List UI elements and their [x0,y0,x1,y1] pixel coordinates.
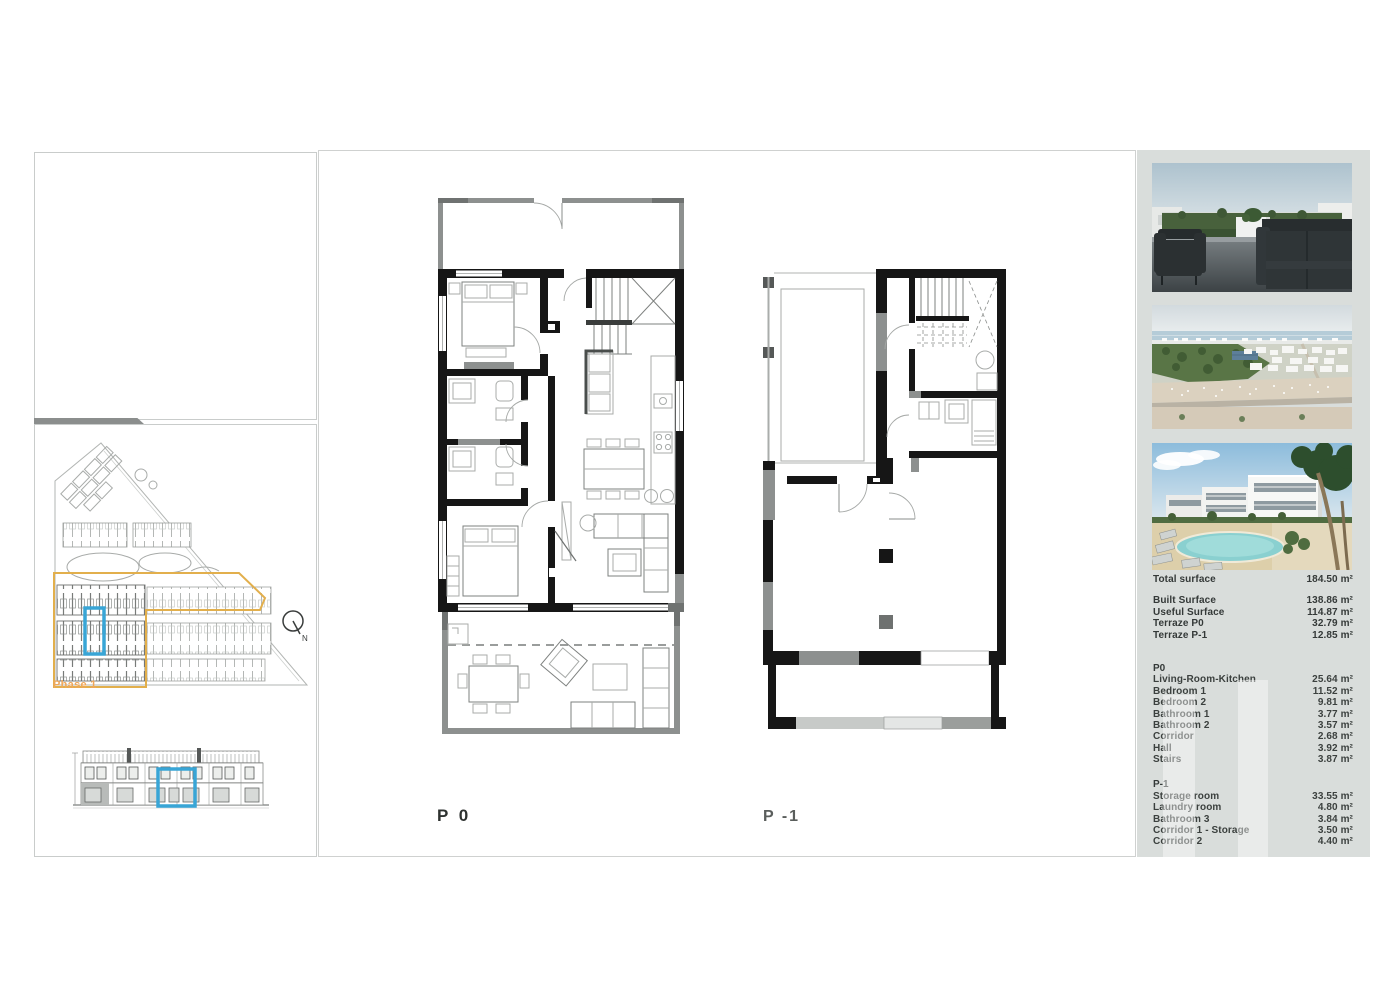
area-label: Terraze P0 [1153,618,1204,629]
sidebar: Total surface 184.50 m² Built Surface138… [1137,150,1370,857]
area-value: 33.55 m² [1312,791,1353,802]
area-value: 138.86 m² [1307,595,1354,606]
p0-label: P 0 [437,806,471,826]
area-row: Corridor 24.40 m² [1153,836,1353,847]
area-label: Bedroom 2 [1153,697,1206,708]
area-label: Laundry room [1153,802,1221,813]
stairs-p0 [586,278,675,354]
area-row: Built Surface138.86 m² [1153,595,1353,606]
area-row: Terraze P032.79 m² [1153,618,1353,629]
empty-panel [34,152,317,420]
area-label: Bathroom 3 [1153,814,1210,825]
phase1-label: Phase 1 [53,679,97,691]
area-label: Terraze P-1 [1153,630,1207,641]
area-label: Corridor 2 [1153,836,1202,847]
area-row: Stairs3.87 m² [1153,754,1353,765]
area-row: Laundry room4.80 m² [1153,802,1353,813]
photo-aerial-coast [1152,305,1352,429]
total-surface-label: Total surface [1153,574,1216,585]
total-surface-row: Total surface 184.50 m² [1153,574,1353,585]
surface-table: Total surface 184.50 m² Built Surface138… [1153,574,1353,848]
p1-label: P -1 [763,808,800,826]
area-label: Bedroom 1 [1153,686,1206,697]
stairs-p1 [921,278,963,316]
summary-rows: Built Surface138.86 m²Useful Surface114.… [1153,595,1353,641]
area-row: Living-Room-Kitchen25.64 m² [1153,674,1353,685]
area-label: Useful Surface [1153,607,1224,618]
area-sections: P0Living-Room-Kitchen25.64 m²Bedroom 111… [1153,663,1353,848]
floor-plans-panel: P 0 P -1 [318,150,1136,857]
area-row: Terraze P-112.85 m² [1153,630,1353,641]
area-label: Bathroom 1 [1153,709,1210,720]
area-label: Living-Room-Kitchen [1153,674,1256,685]
area-value: 3.87 m² [1318,754,1353,765]
area-label: Bathroom 2 [1153,720,1210,731]
area-value: 3.92 m² [1318,743,1353,754]
floor-plan-p1 [761,261,1006,736]
area-label: Stairs [1153,754,1181,765]
area-row: Corridor 1 - Storage3.50 m² [1153,825,1353,836]
photo-roof-terrace [1152,163,1352,292]
area-value: 2.68 m² [1318,731,1353,742]
section-title: P-1 [1153,779,1353,790]
area-label: Storage room [1153,791,1219,802]
area-section-p0: P0Living-Room-Kitchen25.64 m²Bedroom 111… [1153,663,1353,766]
site-plan-drawing: N [41,435,311,700]
aerial-coast-image [1152,305,1352,429]
area-value: 4.80 m² [1318,802,1353,813]
area-row: Bathroom 13.77 m² [1153,709,1353,720]
area-row: Bathroom 33.84 m² [1153,814,1353,825]
site-plan-panel: N Phase 1 [34,424,317,857]
area-row: Bathroom 23.57 m² [1153,720,1353,731]
area-row: Bedroom 29.81 m² [1153,697,1353,708]
area-row: Bedroom 111.52 m² [1153,686,1353,697]
area-value: 12.85 m² [1312,630,1353,641]
area-value: 114.87 m² [1307,607,1353,618]
area-row: Storage room33.55 m² [1153,791,1353,802]
area-label: Built Surface [1153,595,1216,606]
area-value: 9.81 m² [1318,697,1353,708]
photo-residence-pool [1152,443,1352,570]
area-value: 3.84 m² [1318,814,1353,825]
total-surface-value: 184.50 m² [1307,574,1354,585]
area-value: 4.40 m² [1318,836,1353,847]
area-value: 25.64 m² [1312,674,1353,685]
compass-icon: N [283,611,308,643]
area-value: 11.52 m² [1313,686,1353,697]
area-row: Corridor2.68 m² [1153,731,1353,742]
section-title: P0 [1153,663,1353,674]
compass-n-label: N [302,634,308,643]
roof-terrace-image [1152,163,1352,292]
area-section-p1: P-1Storage room33.55 m²Laundry room4.80 … [1153,779,1353,847]
area-value: 32.79 m² [1312,618,1353,629]
area-value: 3.50 m² [1318,825,1353,836]
area-value: 3.77 m² [1318,709,1353,720]
area-row: Useful Surface114.87 m² [1153,607,1353,618]
residence-pool-image [1152,443,1352,570]
floor-plan-p0 [436,196,686,741]
brochure-page: N Phase 1 [0,0,1400,990]
area-label: Corridor [1153,731,1194,742]
area-label: Hall [1153,743,1172,754]
area-value: 3.57 m² [1318,720,1353,731]
area-row: Hall3.92 m² [1153,743,1353,754]
area-label: Corridor 1 - Storage [1153,825,1249,836]
elevation-drawing [69,741,274,816]
